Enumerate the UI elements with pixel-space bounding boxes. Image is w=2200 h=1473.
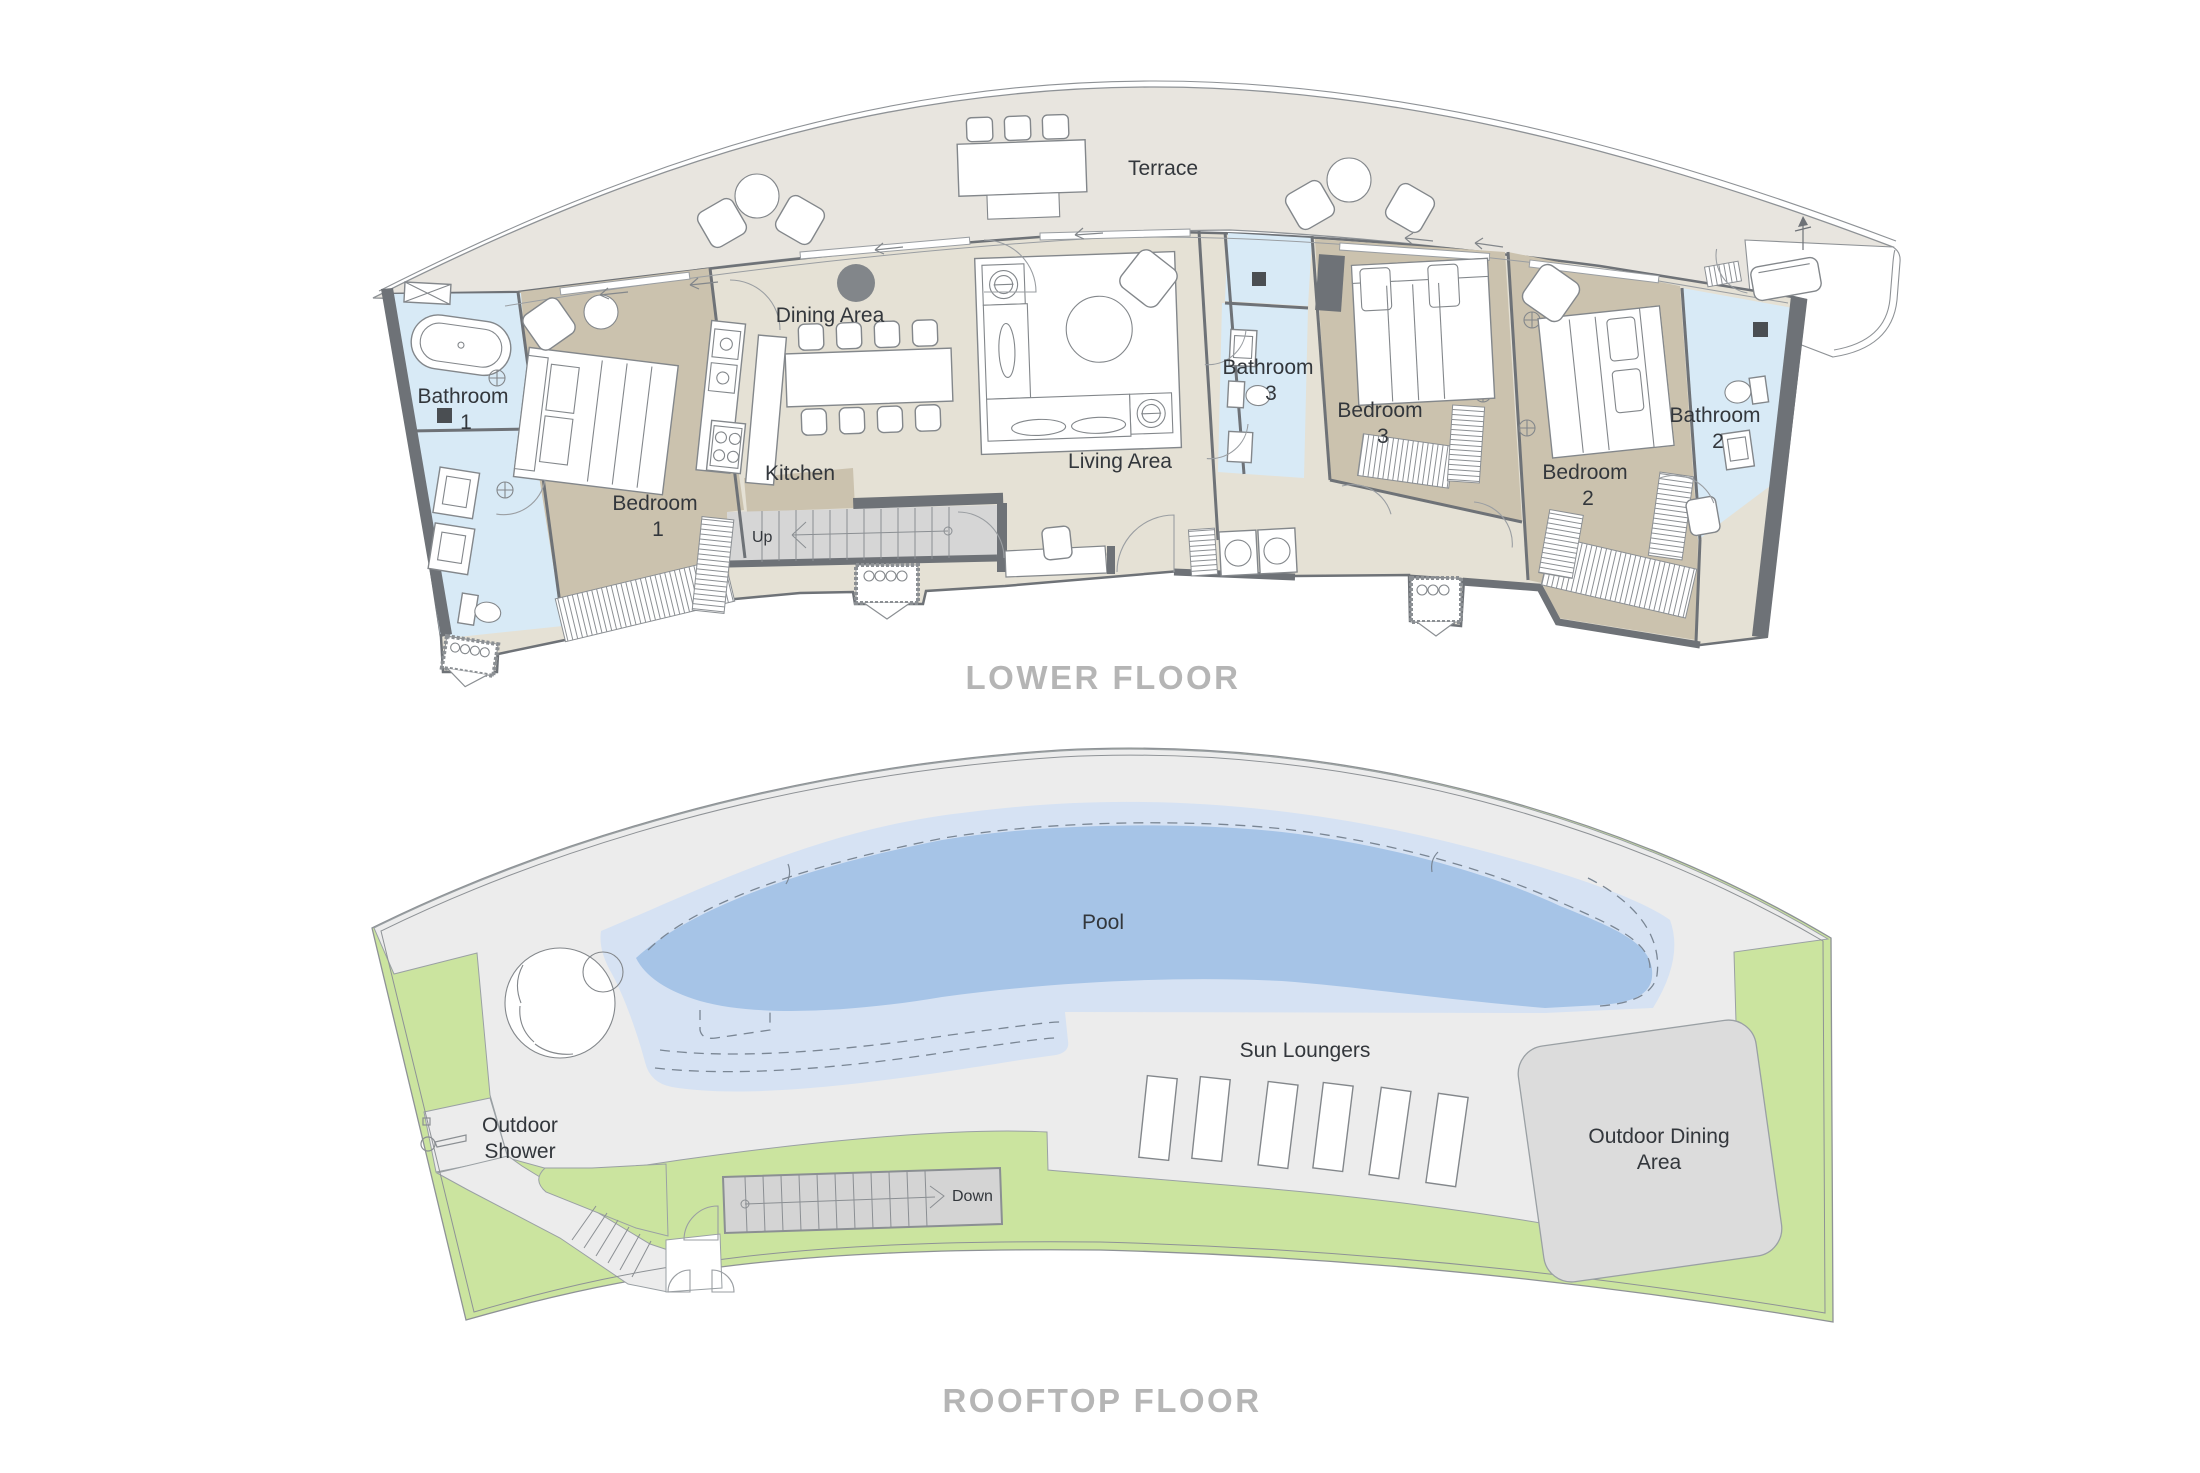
svg-text:Shower: Shower [484, 1140, 555, 1163]
svg-text:Terrace: Terrace [1128, 157, 1198, 180]
svg-text:Outdoor: Outdoor [482, 1114, 558, 1137]
svg-text:Sun Loungers: Sun Loungers [1240, 1039, 1371, 1062]
svg-text:Pool: Pool [1082, 911, 1124, 934]
svg-text:Bathroom: Bathroom [1669, 404, 1760, 427]
svg-text:Outdoor Dining: Outdoor Dining [1588, 1125, 1729, 1148]
svg-text:2: 2 [1712, 430, 1724, 453]
svg-text:Dining Area: Dining Area [776, 304, 885, 327]
svg-text:2: 2 [1582, 487, 1594, 510]
svg-text:LOWER FLOOR: LOWER FLOOR [966, 659, 1241, 696]
svg-text:1: 1 [652, 518, 664, 541]
svg-text:3: 3 [1377, 425, 1389, 448]
svg-text:Bathroom: Bathroom [417, 385, 508, 408]
svg-text:3: 3 [1265, 382, 1277, 405]
svg-text:Kitchen: Kitchen [765, 462, 835, 485]
svg-text:1: 1 [460, 411, 472, 434]
svg-text:Area: Area [1637, 1151, 1682, 1174]
svg-text:Bedroom: Bedroom [612, 492, 697, 515]
svg-text:Bedroom: Bedroom [1542, 461, 1627, 484]
svg-text:Down: Down [952, 1188, 993, 1205]
svg-text:Bathroom: Bathroom [1222, 356, 1313, 379]
svg-text:ROOFTOP FLOOR: ROOFTOP FLOOR [942, 1382, 1261, 1419]
svg-text:Living Area: Living Area [1068, 450, 1172, 473]
svg-text:Bedroom: Bedroom [1337, 399, 1422, 422]
svg-text:Up: Up [752, 529, 773, 546]
